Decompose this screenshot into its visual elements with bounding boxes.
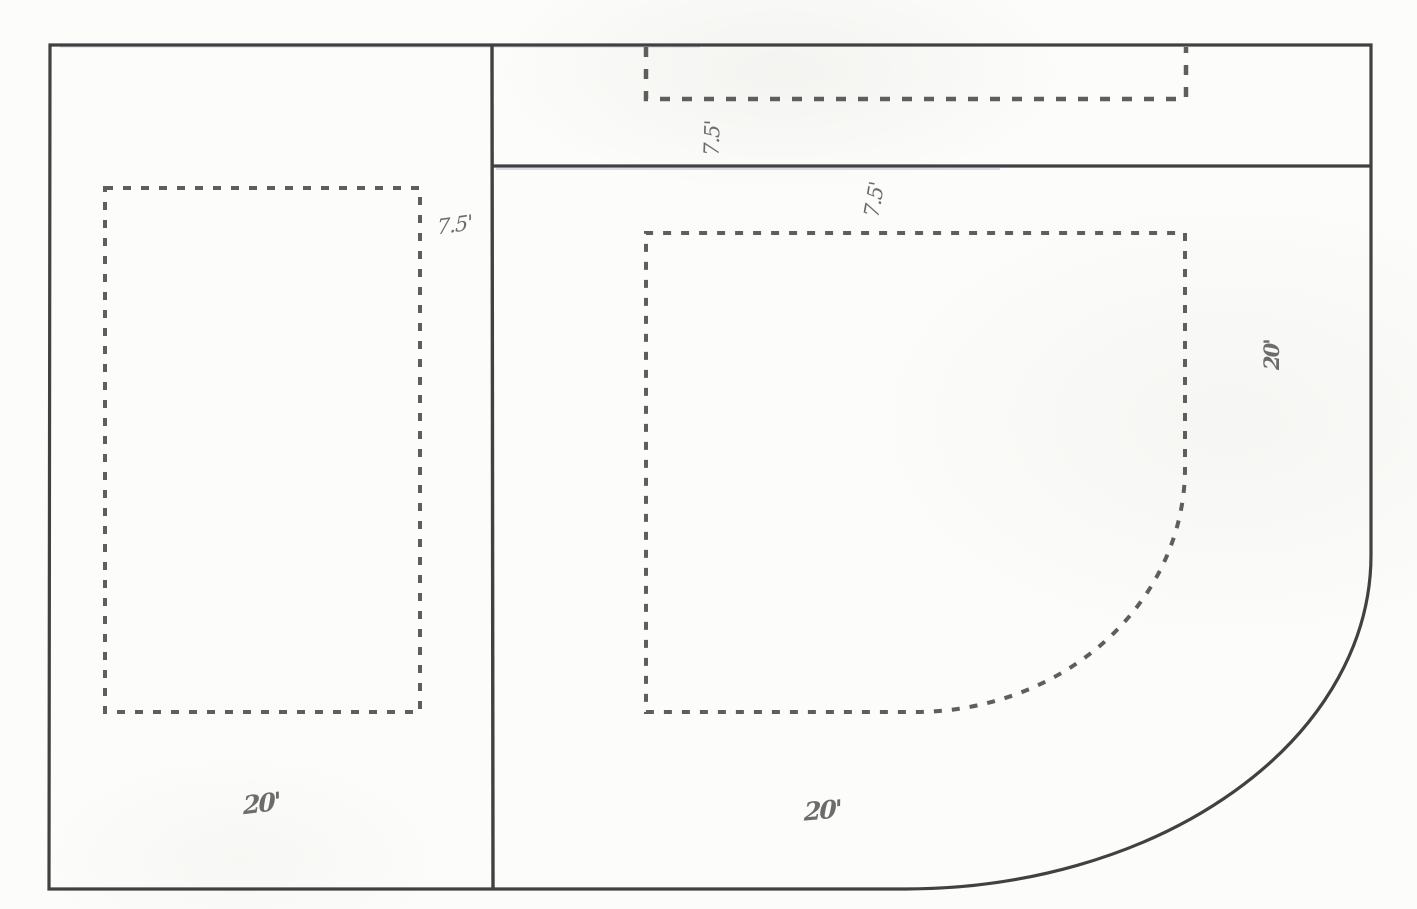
lot-divider-line <box>492 45 493 890</box>
dimension-label-right-lot-rear: 20' <box>804 794 841 826</box>
parcel-outer-boundary <box>49 45 1371 889</box>
site-plan-diagram: 7.5' 7.5' 7.5' 20' 20' 20' <box>0 0 1417 909</box>
dimension-label-left-lot-side-setback: 7.5' <box>437 210 472 239</box>
right-lot-setback-outline <box>646 233 1185 712</box>
dimension-label-left-lot-rear: 20' <box>243 787 280 821</box>
left-lot-setback-outline <box>105 188 420 712</box>
corner-strip-setback-outline <box>646 47 1186 99</box>
dimension-label-right-lot-street-side-setback: 20' <box>1259 340 1284 370</box>
dimension-label-corner-strip-setback: 7.5' <box>699 120 724 156</box>
